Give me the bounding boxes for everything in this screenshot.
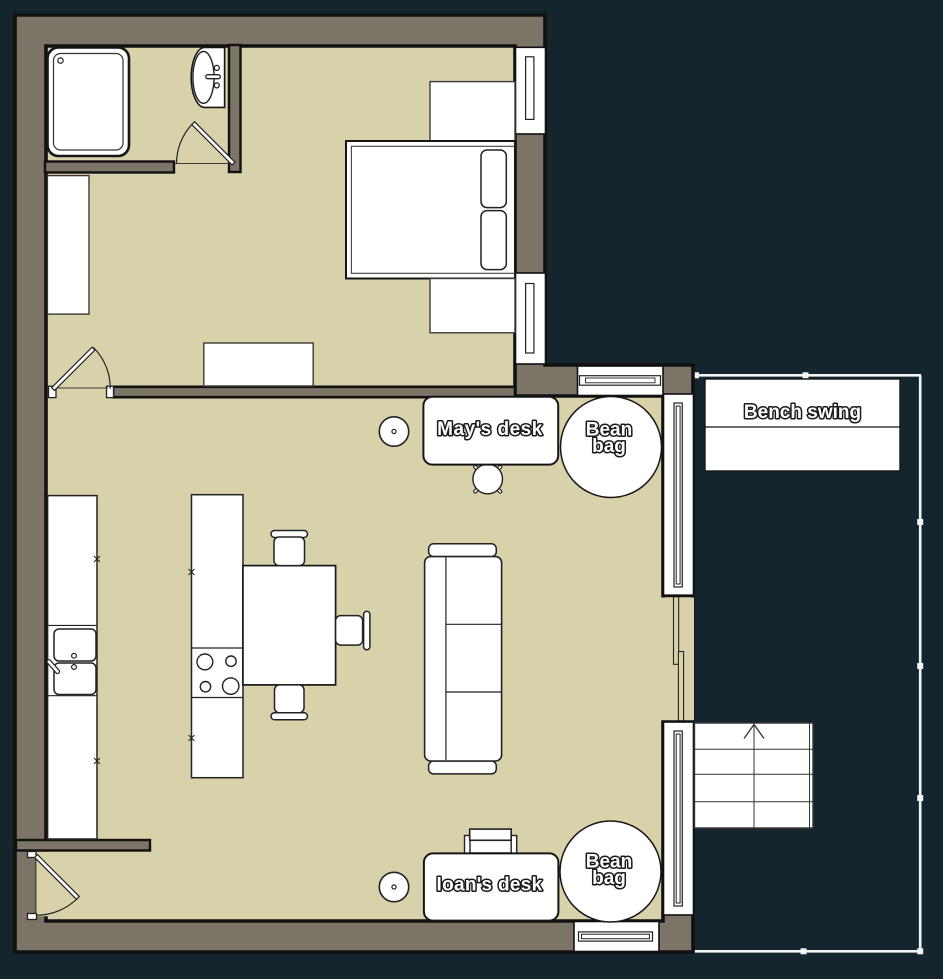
svg-text:Ioan's desk: Ioan's desk <box>436 875 542 896</box>
svg-text:Bench swing: Bench swing <box>744 402 861 423</box>
svg-text:bag: bag <box>592 868 626 889</box>
svg-text:bag: bag <box>592 436 626 457</box>
svg-text:May's desk: May's desk <box>437 419 543 440</box>
